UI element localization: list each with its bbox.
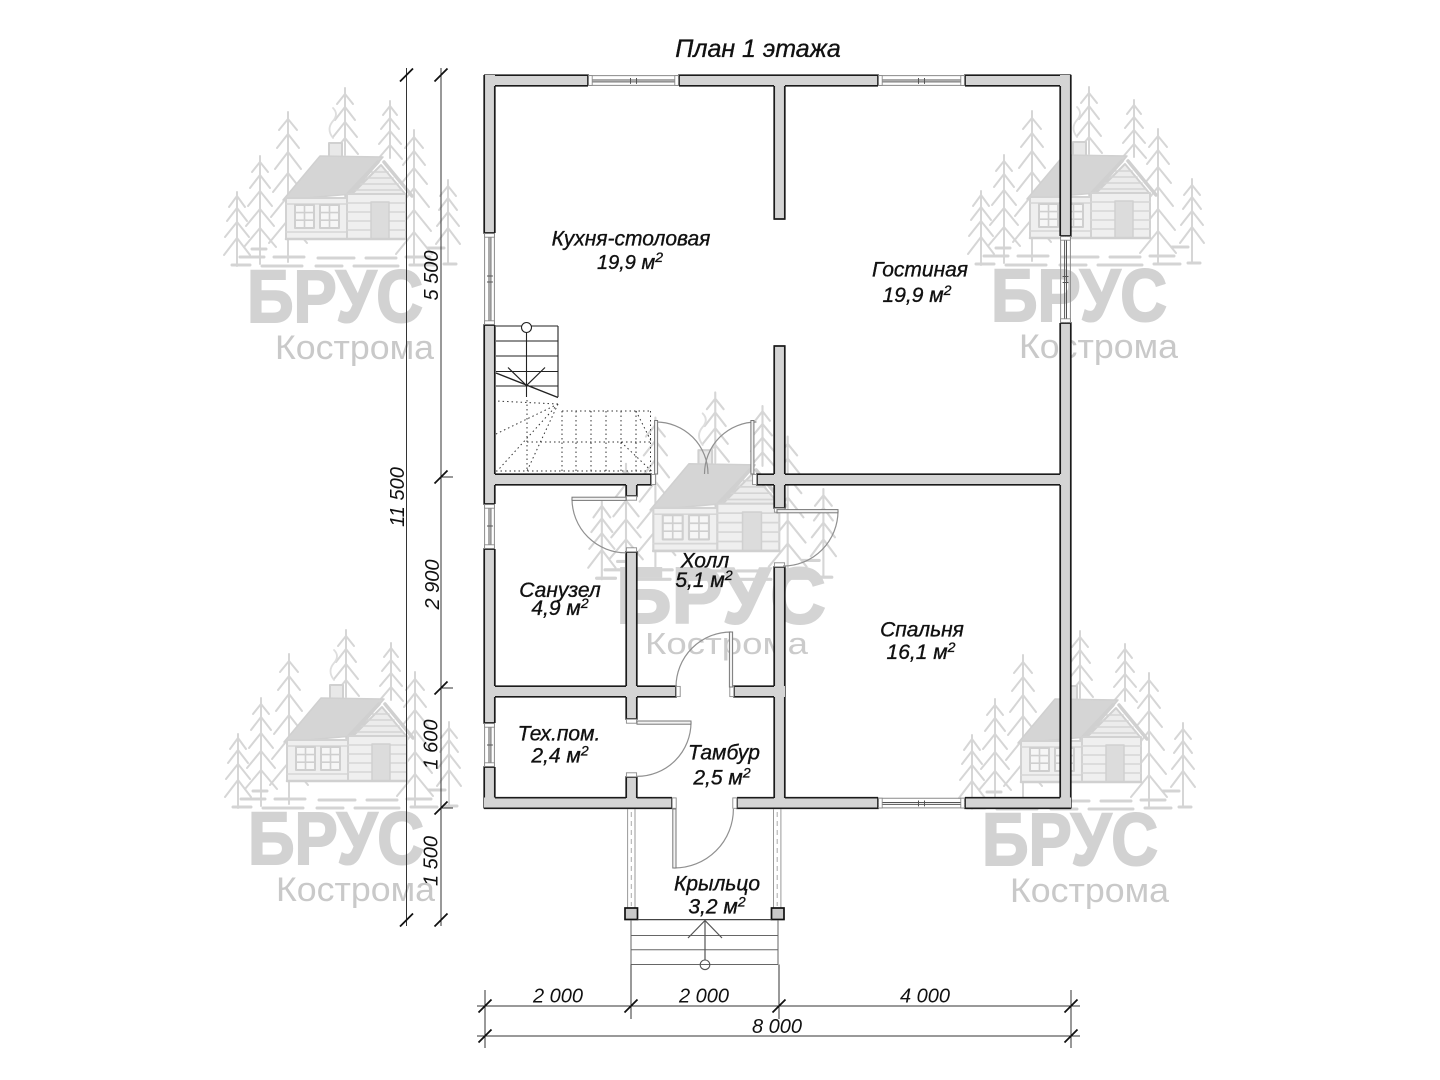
svg-text:2,4 м2: 2,4 м2 xyxy=(530,743,588,768)
svg-text:5 500: 5 500 xyxy=(421,250,443,300)
svg-text:4 000: 4 000 xyxy=(900,986,950,1008)
svg-text:Гостиная: Гостиная xyxy=(872,259,968,282)
svg-text:1 600: 1 600 xyxy=(421,719,443,769)
svg-text:План 1 этажа: План 1 этажа xyxy=(675,35,841,63)
svg-text:Кухня-столовая: Кухня-столовая xyxy=(552,228,711,251)
svg-text:2 900: 2 900 xyxy=(422,559,444,610)
svg-text:2,5 м2: 2,5 м2 xyxy=(692,765,750,790)
svg-text:2 000: 2 000 xyxy=(678,986,729,1008)
svg-text:8 000: 8 000 xyxy=(752,1016,802,1038)
svg-text:3,2 м2: 3,2 м2 xyxy=(688,894,745,919)
svg-text:4,9 м2: 4,9 м2 xyxy=(531,595,588,620)
svg-text:Тамбур: Тамбур xyxy=(688,742,760,765)
svg-text:19,9 м2: 19,9 м2 xyxy=(883,282,952,307)
svg-text:Крыльцо: Крыльцо xyxy=(674,873,760,896)
svg-text:5,1 м2: 5,1 м2 xyxy=(675,567,732,592)
svg-text:16,1 м2: 16,1 м2 xyxy=(887,639,956,664)
svg-text:19,9 м2: 19,9 м2 xyxy=(597,249,663,274)
svg-text:1 500: 1 500 xyxy=(421,836,443,886)
svg-text:2 000: 2 000 xyxy=(532,986,583,1008)
svg-text:11 500: 11 500 xyxy=(387,467,409,527)
